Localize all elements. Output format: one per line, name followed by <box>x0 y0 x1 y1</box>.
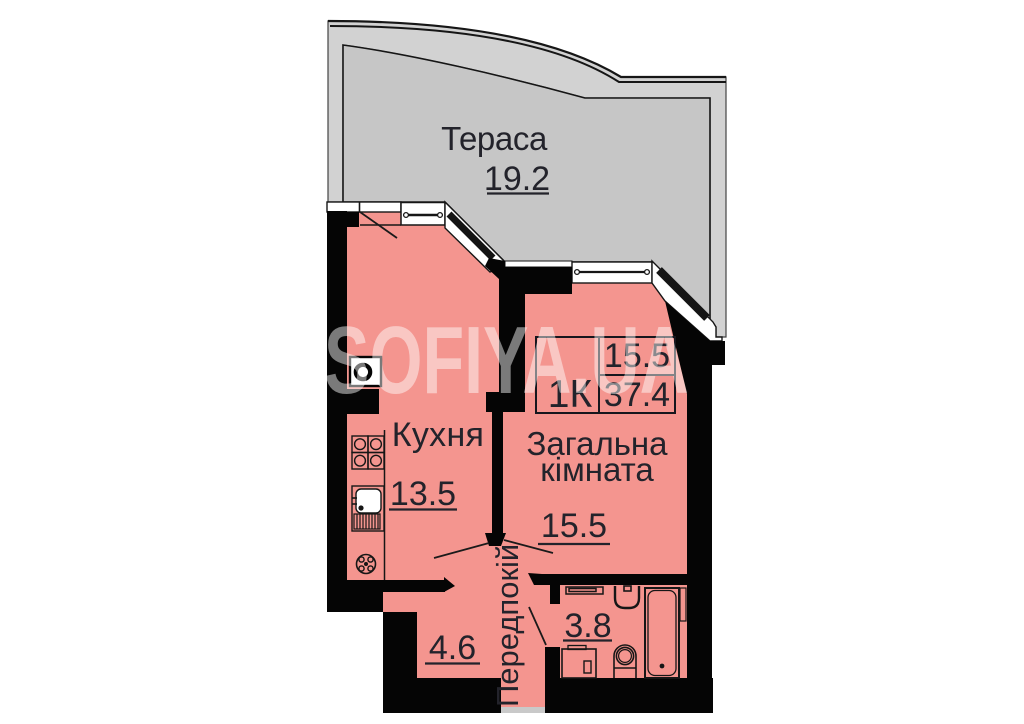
svg-text:Передпокій: Передпокій <box>490 544 525 707</box>
svg-text:4.6: 4.6 <box>429 629 476 667</box>
svg-text:Тераса: Тераса <box>441 120 548 157</box>
svg-text:19.2: 19.2 <box>484 160 550 198</box>
svg-text:SOFIYA.UA: SOFIYA.UA <box>324 307 689 414</box>
svg-text:15.5: 15.5 <box>541 507 607 545</box>
svg-text:3.8: 3.8 <box>564 607 611 645</box>
svg-text:13.5: 13.5 <box>390 475 456 513</box>
svg-text:Кухня: Кухня <box>392 416 485 454</box>
svg-text:кімната: кімната <box>540 451 654 488</box>
